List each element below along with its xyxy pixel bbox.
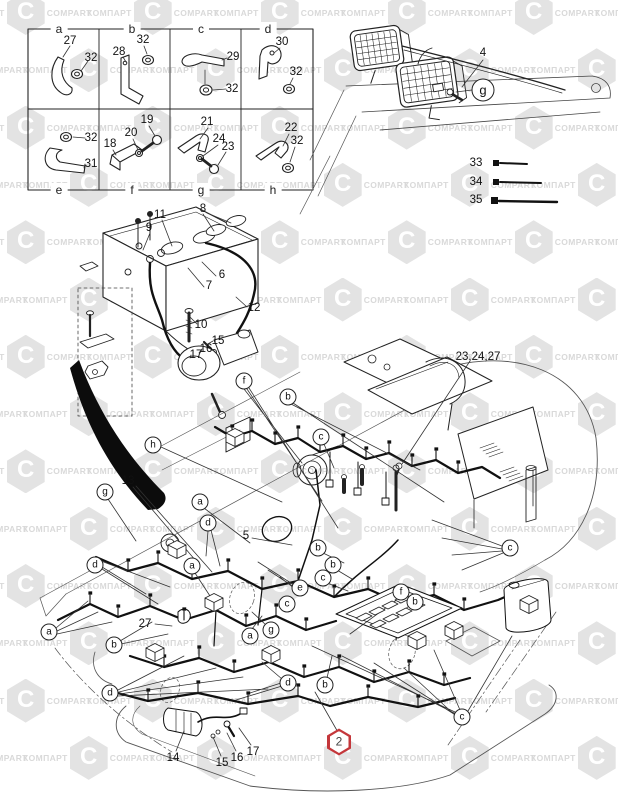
circled-letter-callout-d[interactable]: d (200, 515, 217, 532)
circled-letter-callout-g[interactable]: g (472, 79, 495, 102)
part-number-callout-20[interactable]: 20 (125, 127, 138, 139)
part-number-callout-31[interactable]: 31 (85, 158, 98, 170)
part-number-callout-18[interactable]: 18 (104, 138, 117, 150)
part-number-callout-32[interactable]: 32 (226, 83, 239, 95)
parts-diagram-page: КОМПАРТCCOMPARTКОМПАРТCCOMPARTКОМПАРТCCO… (0, 0, 618, 800)
part-number-callout-27[interactable]: 27 (64, 35, 77, 47)
circled-letter-callout-e[interactable]: e (292, 580, 309, 597)
circled-letter-callout-g[interactable]: g (263, 622, 280, 639)
circled-letter-callout-g[interactable]: g (97, 484, 114, 501)
part-number-callout-15[interactable]: 15 (216, 757, 229, 769)
circled-letter-callout-a[interactable]: a (242, 628, 259, 645)
part-number-callout-35[interactable]: 35 (470, 194, 483, 206)
circled-letter-callout-b[interactable]: b (407, 594, 424, 611)
part-number-callout-32[interactable]: 32 (290, 66, 303, 78)
part-number-callout-14[interactable]: 14 (167, 752, 180, 764)
badge-label: 2 (327, 729, 351, 756)
part-number-callout-32[interactable]: 32 (85, 132, 98, 144)
circled-letter-callout-a[interactable]: a (41, 624, 58, 641)
grid-section-label-a: a (51, 22, 68, 36)
grid-section-label-h: h (265, 183, 282, 197)
grid-section-label-f: f (125, 183, 138, 197)
highlighted-part-badge-2[interactable]: 2 (327, 729, 351, 756)
circled-letter-callout-f[interactable]: f (236, 373, 253, 390)
part-number-callout-10[interactable]: 10 (195, 319, 208, 331)
part-number-callout-6[interactable]: 6 (219, 269, 225, 281)
circled-letter-callout-b[interactable]: b (280, 389, 297, 406)
part-number-callout-16[interactable]: 16 (231, 752, 244, 764)
part-number-callout-8[interactable]: 8 (200, 203, 206, 215)
circled-letter-callout-d[interactable]: d (87, 557, 104, 574)
part-number-callout-27[interactable]: 27 (139, 618, 152, 630)
part-number-callout-21[interactable]: 21 (201, 116, 214, 128)
circled-letter-callout-b[interactable]: b (106, 637, 123, 654)
circled-letter-callout-b[interactable]: b (310, 540, 327, 557)
part-number-callout-28[interactable]: 28 (113, 46, 126, 58)
part-number-callout-32[interactable]: 32 (137, 34, 150, 46)
part-number-callout-9[interactable]: 9 (146, 222, 152, 234)
part-number-callout-7[interactable]: 7 (206, 280, 212, 292)
grid-section-label-c: c (193, 22, 209, 36)
part-number-callout-19[interactable]: 19 (141, 114, 154, 126)
part-number-callout-29[interactable]: 29 (227, 51, 240, 63)
part-number-callout-5[interactable]: 5 (243, 530, 249, 542)
circled-letter-callout-c[interactable]: c (279, 596, 296, 613)
part-number-callout-22[interactable]: 22 (285, 122, 298, 134)
part-number-callout-15[interactable]: 15 (212, 335, 225, 347)
part-number-callout-23-24-27[interactable]: 23,24,27 (456, 351, 501, 363)
circled-letter-callout-c[interactable]: c (315, 570, 332, 587)
part-number-callout-12[interactable]: 12 (248, 302, 261, 314)
part-number-callout-23[interactable]: 23 (222, 141, 235, 153)
part-number-callout-13[interactable]: 13 (122, 475, 135, 487)
part-number-callout-11[interactable]: 11 (154, 209, 166, 221)
part-number-callout-17[interactable]: 17 (247, 746, 260, 758)
grid-section-label-e: e (51, 183, 68, 197)
circled-letter-callout-a[interactable]: a (192, 494, 209, 511)
grid-section-label-g: g (193, 183, 210, 197)
part-number-callout-32[interactable]: 32 (291, 135, 304, 147)
circled-letter-callout-a[interactable]: a (184, 558, 201, 575)
part-number-callout-4[interactable]: 4 (480, 47, 486, 59)
part-number-callout-17[interactable]: 17 (190, 349, 203, 361)
circled-letter-callout-c[interactable]: c (313, 429, 330, 446)
part-number-callout-32[interactable]: 32 (85, 52, 98, 64)
circled-letter-callout-d[interactable]: d (280, 675, 297, 692)
part-number-callout-30[interactable]: 30 (276, 36, 289, 48)
circled-letter-callout-b[interactable]: b (317, 677, 334, 694)
callout-layer: abcdefgh27322832293230323231192018212423… (0, 0, 618, 800)
grid-section-label-d: d (260, 22, 277, 36)
circled-letter-callout-c[interactable]: c (502, 540, 519, 557)
part-number-callout-33[interactable]: 33 (470, 157, 483, 169)
circled-letter-callout-c[interactable]: c (454, 709, 471, 726)
circled-letter-callout-h[interactable]: h (145, 437, 162, 454)
part-number-callout-34[interactable]: 34 (470, 176, 483, 188)
circled-letter-callout-d[interactable]: d (102, 685, 119, 702)
